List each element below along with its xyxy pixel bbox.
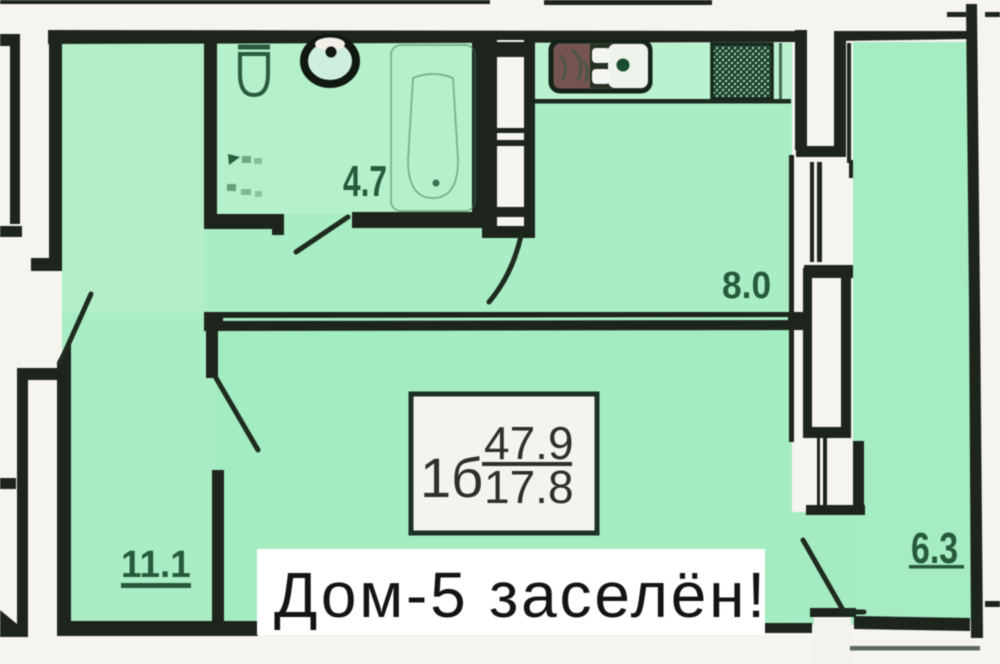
svg-text:8.0: 8.0: [722, 264, 771, 306]
svg-text:11.1: 11.1: [121, 542, 191, 585]
svg-text:1б: 1б: [420, 446, 483, 509]
svg-text:17.8: 17.8: [484, 461, 574, 513]
svg-text:4.7: 4.7: [343, 157, 387, 206]
